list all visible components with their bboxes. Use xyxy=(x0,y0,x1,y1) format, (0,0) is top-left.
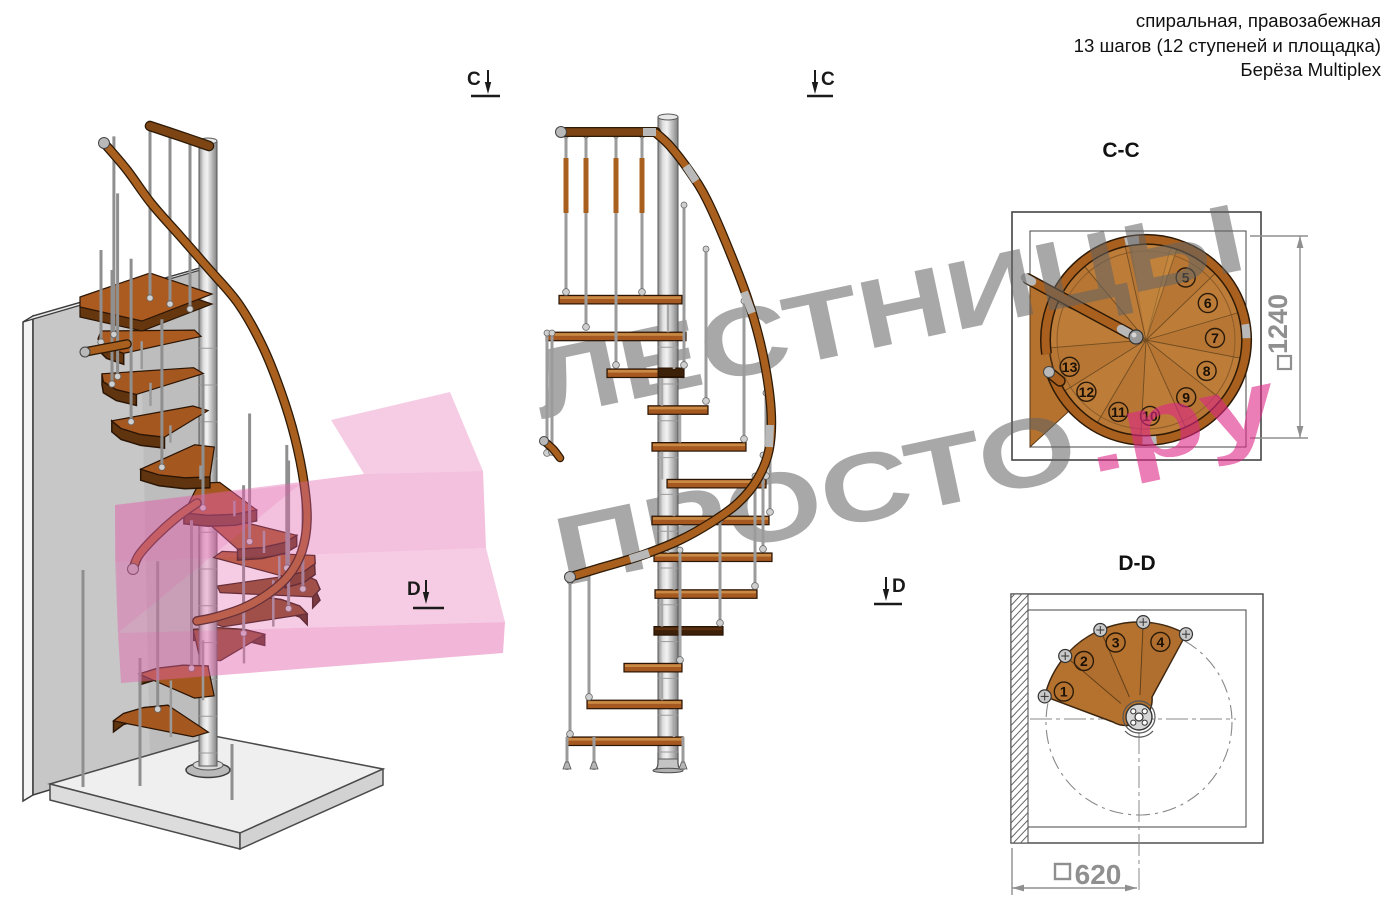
svg-text:спиральная, правозабежная: спиральная, правозабежная xyxy=(1136,10,1381,31)
svg-text:D: D xyxy=(407,579,421,600)
svg-text:2: 2 xyxy=(1080,653,1088,669)
svg-text:D-D: D-D xyxy=(1118,552,1155,575)
svg-text:C-C: C-C xyxy=(1102,139,1139,162)
svg-text:C: C xyxy=(467,69,481,90)
svg-text:C: C xyxy=(821,69,835,90)
svg-text:4: 4 xyxy=(1157,634,1165,650)
svg-text:1: 1 xyxy=(1060,684,1068,700)
svg-text:13: 13 xyxy=(1062,359,1078,375)
svg-text:1240: 1240 xyxy=(1263,294,1293,354)
svg-text:13 шагов (12 ступеней и площад: 13 шагов (12 ступеней и площадка) xyxy=(1074,35,1381,56)
svg-text:7: 7 xyxy=(1211,330,1219,346)
svg-text:Берёза Multiplex: Берёза Multiplex xyxy=(1240,59,1381,80)
svg-text:D: D xyxy=(892,576,906,597)
svg-text:620: 620 xyxy=(1075,859,1122,890)
svg-text:3: 3 xyxy=(1112,635,1120,651)
